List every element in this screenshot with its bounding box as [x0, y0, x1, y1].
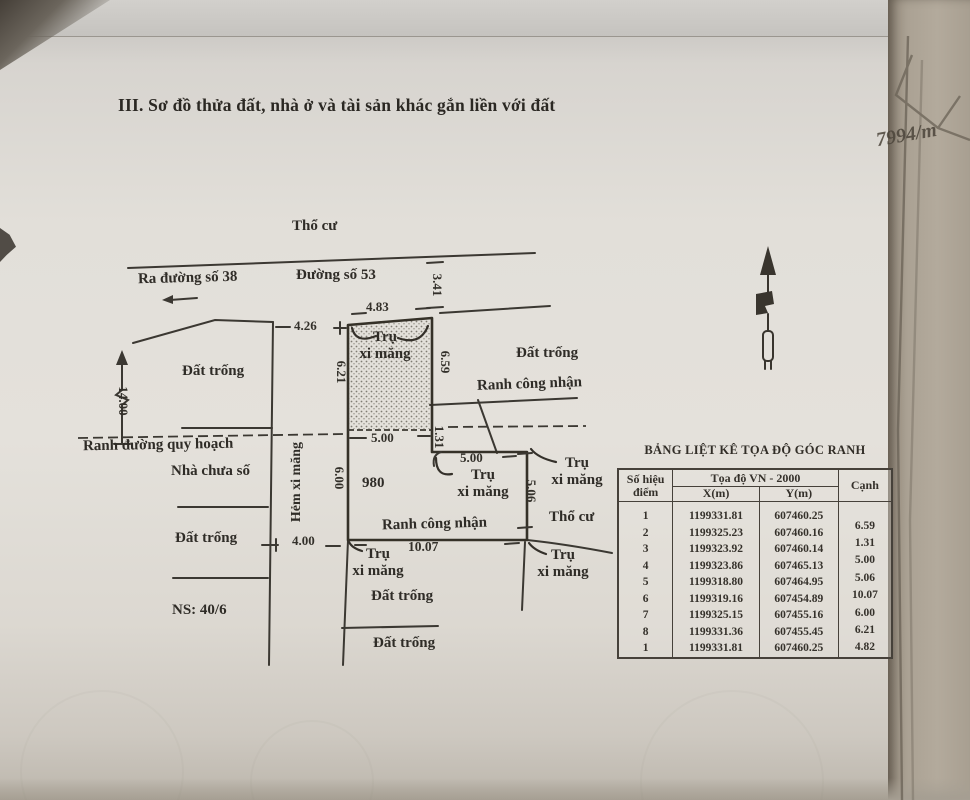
dimension-arrowhead	[116, 350, 128, 365]
y-cell: 607460.16	[759, 524, 838, 541]
edge-value: 1.31	[841, 535, 889, 552]
y-cell: 607455.45	[759, 624, 838, 641]
scanned-land-document: III. Sơ đồ thửa đất, nhà ở và tài sản kh…	[0, 0, 970, 800]
dim-14-00: 14.00	[115, 376, 131, 426]
point-cell: 4	[618, 557, 673, 574]
point-cell: 5	[618, 574, 673, 591]
x-cell: 1199331.81	[673, 640, 759, 658]
label-tru-xi-mang-house: Trụ xi măng	[347, 329, 423, 364]
label-dat-trong-bottom2: Đất trống	[373, 635, 435, 652]
col-header-y: Y(m)	[759, 486, 838, 501]
label-ranh-cong-nhan-bottom: Ranh công nhận	[382, 515, 487, 535]
dim-5-06: 5.06	[523, 469, 539, 513]
label-tru-xi-mang-bottom-right: Trụ xi măng	[523, 547, 603, 582]
label-ra-duong-38: Ra đường số 38	[138, 269, 238, 289]
point-cell: 1	[618, 501, 673, 524]
y-cell: 607455.16	[759, 607, 838, 624]
col-header-point-line1: Số hiệu	[621, 473, 670, 487]
edge-value: 5.00	[841, 552, 889, 569]
label-tho-cu-top: Thổ cư	[292, 218, 337, 235]
label-tho-cu-right: Thổ cư	[549, 509, 594, 526]
edge-value: 10.07	[841, 587, 889, 604]
edge-value: 6.59	[841, 518, 889, 535]
col-header-point-line2: điểm	[621, 486, 670, 500]
label-ranh-cong-nhan-right: Ranh công nhận	[477, 374, 583, 395]
col-header-point: Số hiệu điểm	[618, 469, 673, 501]
y-cell: 607460.25	[759, 640, 838, 658]
dim-4-83: 4.83	[366, 299, 389, 315]
tru-line: Trụ	[523, 547, 603, 564]
x-cell: 1199323.92	[673, 541, 759, 558]
dim-5-00-hatch: 5.00	[371, 430, 394, 446]
x-cell: 1199325.15	[673, 607, 759, 624]
label-ranh-duong-quy-hoach: Ranh đường quy hoạch	[83, 436, 234, 456]
xi-mang-line: xi măng	[443, 484, 523, 501]
edge-cell: 6.591.315.005.0610.076.006.214.82	[838, 501, 892, 658]
y-cell: 607460.25	[759, 501, 838, 524]
point-cell: 6	[618, 590, 673, 607]
dim-6-00: 6.00	[331, 456, 347, 500]
dim-4-00: 4.00	[292, 533, 315, 549]
tru-line: Trụ	[347, 329, 423, 346]
y-cell: 607460.14	[759, 541, 838, 558]
label-dat-trong-right: Đất trống	[516, 345, 578, 362]
dim-6-21: 6.21	[333, 350, 349, 394]
label-parcel-980: 980	[362, 475, 385, 492]
coord-table-title: BẢNG LIỆT KÊ TỌA ĐỘ GÓC RANH	[612, 443, 898, 458]
label-dat-trong-bottom1: Đất trống	[371, 588, 433, 605]
y-cell: 607465.13	[759, 557, 838, 574]
col-header-coord: Tọa độ VN - 2000	[673, 469, 838, 486]
col-header-x: X(m)	[673, 486, 759, 501]
coord-table-body: 11199331.81607460.256.591.315.005.0610.0…	[618, 501, 892, 658]
plot-diagram-lines	[0, 0, 970, 800]
label-nha-chua-so: Nhà chưa số	[171, 463, 250, 480]
point-cell: 3	[618, 541, 673, 558]
point-cell: 1	[618, 640, 673, 658]
x-cell: 1199325.23	[673, 524, 759, 541]
y-cell: 607464.95	[759, 574, 838, 591]
dim-3-41: 3.41	[429, 263, 445, 307]
edge-value: 5.06	[841, 570, 889, 587]
tru-line: Trụ	[443, 467, 523, 484]
north-arrow-icon	[763, 274, 773, 369]
label-tru-xi-mang-right: Trụ xi măng	[538, 455, 616, 490]
tru-line: Trụ	[538, 455, 616, 472]
dim-1-31: 1.31	[431, 415, 447, 459]
xi-mang-line: xi măng	[347, 346, 423, 363]
point-cell: 2	[618, 524, 673, 541]
dim-6-59: 6.59	[437, 340, 453, 384]
x-cell: 1199331.81	[673, 501, 759, 524]
coord-table-head: Số hiệu điểm Tọa độ VN - 2000 Cạnh X(m) …	[618, 469, 892, 501]
col-header-edge: Cạnh	[838, 469, 892, 501]
label-duong-53: Đường số 53	[296, 267, 376, 284]
x-cell: 1199323.86	[673, 557, 759, 574]
label-ns-40-6: NS: 40/6	[172, 602, 227, 619]
tru-line: Trụ	[338, 546, 418, 563]
edge-value: 6.21	[841, 622, 889, 639]
label-dat-trong-left: Đất trống	[182, 363, 244, 380]
x-cell: 1199331.36	[673, 624, 759, 641]
label-dat-trong-left2: Đất trống	[175, 530, 237, 547]
label-tru-xi-mang-bottom-left: Trụ xi măng	[338, 546, 418, 581]
xi-mang-line: xi măng	[538, 472, 616, 489]
label-tru-xi-mang-mid: Trụ xi măng	[443, 467, 523, 502]
xi-mang-line: xi măng	[338, 563, 418, 580]
table-row: 11199331.81607460.256.591.315.005.0610.0…	[618, 501, 892, 524]
y-cell: 607454.89	[759, 590, 838, 607]
dim-4-26: 4.26	[294, 318, 317, 334]
point-cell: 7	[618, 607, 673, 624]
x-cell: 1199318.80	[673, 574, 759, 591]
edge-value: 6.00	[841, 605, 889, 622]
xi-mang-line: xi măng	[523, 564, 603, 581]
coord-table: Số hiệu điểm Tọa độ VN - 2000 Cạnh X(m) …	[617, 468, 893, 659]
edge-value: 4.82	[841, 639, 889, 656]
page-title: III. Sơ đồ thửa đất, nhà ở và tài sản kh…	[118, 95, 555, 115]
point-cell: 8	[618, 624, 673, 641]
dim-5-00-notch: 5.00	[460, 450, 483, 466]
label-hem-xi-mang: Hẻm xi măng	[289, 432, 305, 532]
x-cell: 1199319.16	[673, 590, 759, 607]
